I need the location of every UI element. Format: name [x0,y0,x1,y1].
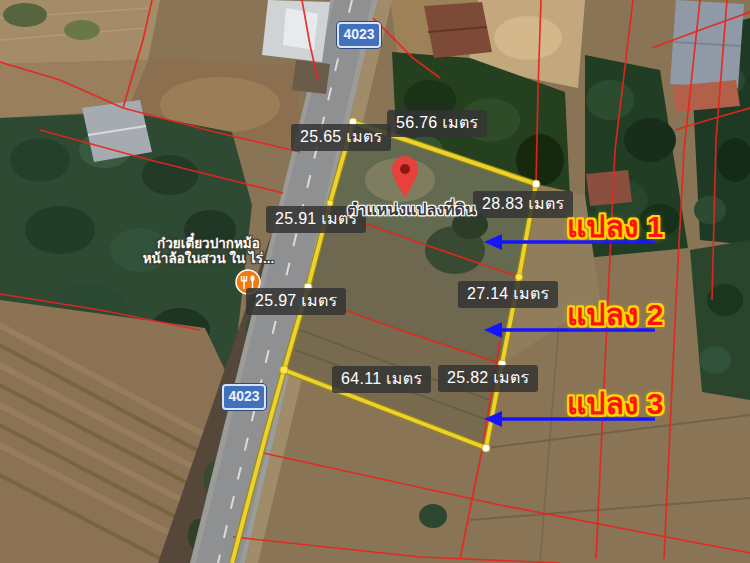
measurement-road-top: 25.65 เมตร [291,124,391,151]
pin-label: ตำแหน่งแปลงที่ดิน [347,197,476,222]
plot-1-label: แปลง 1 [567,210,663,244]
measurement-road-lower: 25.97 เมตร [246,288,346,315]
route-shield-top: 4023 [337,22,381,48]
plot-2-label: แปลง 2 [567,298,663,332]
poi-name-line1: ก๋วยเตี๋ยวปากหม้อ [157,236,260,251]
poi-name-line2: หน้าล้อในสวน ใน ไร่... [143,251,275,266]
land-listing-map: 25.65 เมตร 56.76 เมตร 25.91 เมตร 28.83 เ… [0,0,750,563]
poi-name: ก๋วยเตี๋ยวปากหม้อ หน้าล้อในสวน ใน ไร่... [136,236,281,266]
measurement-top-edge: 56.76 เมตร [387,110,487,137]
measurement-right-upper: 28.83 เมตร [473,191,573,218]
measurement-right-lower: 25.82 เมตร [438,365,538,392]
satellite-map-canvas [0,0,750,563]
measurement-bottom-edge: 64.11 เมตร [332,366,431,393]
route-shield-bottom: 4023 [222,384,266,410]
plot-3-label: แปลง 3 [567,387,663,421]
measurement-right-middle: 27.14 เมตร [458,281,558,308]
